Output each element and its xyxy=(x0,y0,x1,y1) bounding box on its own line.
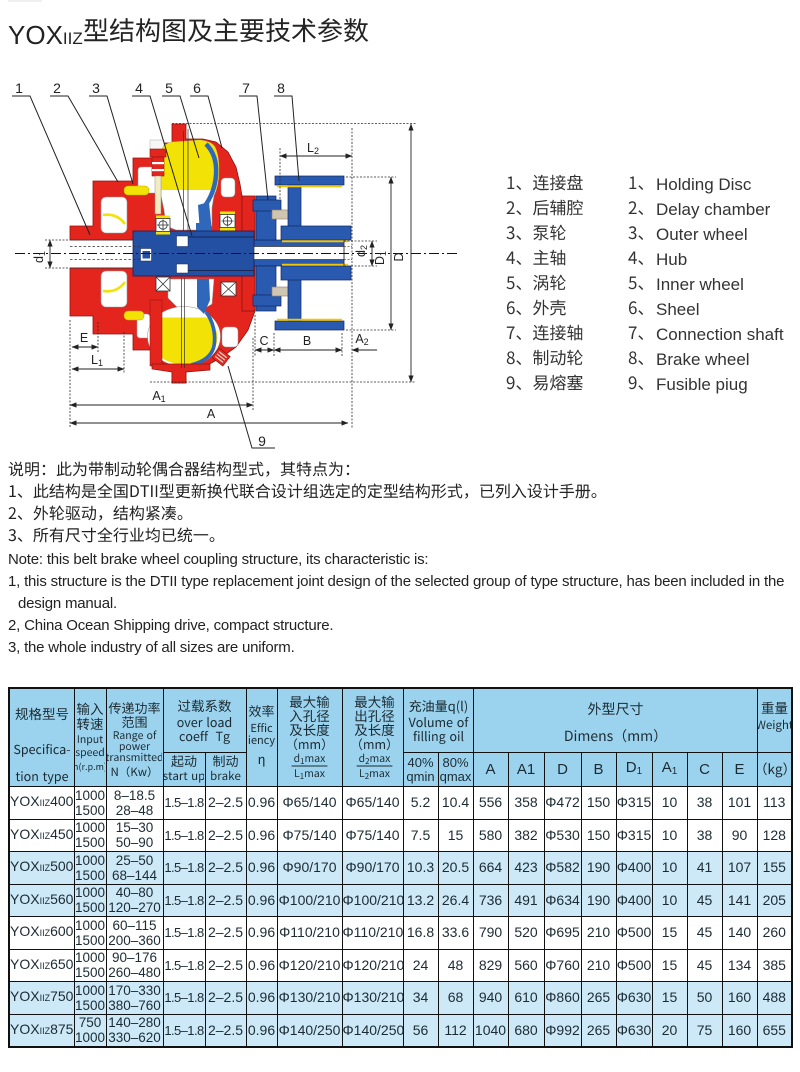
svg-text:9: 9 xyxy=(258,433,266,449)
svg-text:d1: d1 xyxy=(32,251,47,263)
svg-text:4: 4 xyxy=(135,80,143,96)
svg-text:8: 8 xyxy=(277,80,285,96)
svg-text:2: 2 xyxy=(53,80,61,96)
svg-text:D: D xyxy=(392,252,406,261)
svg-text:E: E xyxy=(80,331,88,345)
svg-text:L2: L2 xyxy=(307,141,319,156)
svg-text:A2: A2 xyxy=(355,332,368,347)
svg-text:3: 3 xyxy=(92,80,100,96)
svg-text:L1: L1 xyxy=(91,353,103,368)
svg-text:7: 7 xyxy=(242,80,250,96)
svg-text:A: A xyxy=(207,407,216,421)
svg-text:5: 5 xyxy=(165,80,173,96)
svg-text:B: B xyxy=(303,334,311,348)
svg-text:A1: A1 xyxy=(152,389,165,404)
svg-text:C: C xyxy=(259,334,268,348)
svg-text:6: 6 xyxy=(193,80,201,96)
svg-text:d2: d2 xyxy=(354,245,369,257)
svg-text:1: 1 xyxy=(15,80,23,96)
